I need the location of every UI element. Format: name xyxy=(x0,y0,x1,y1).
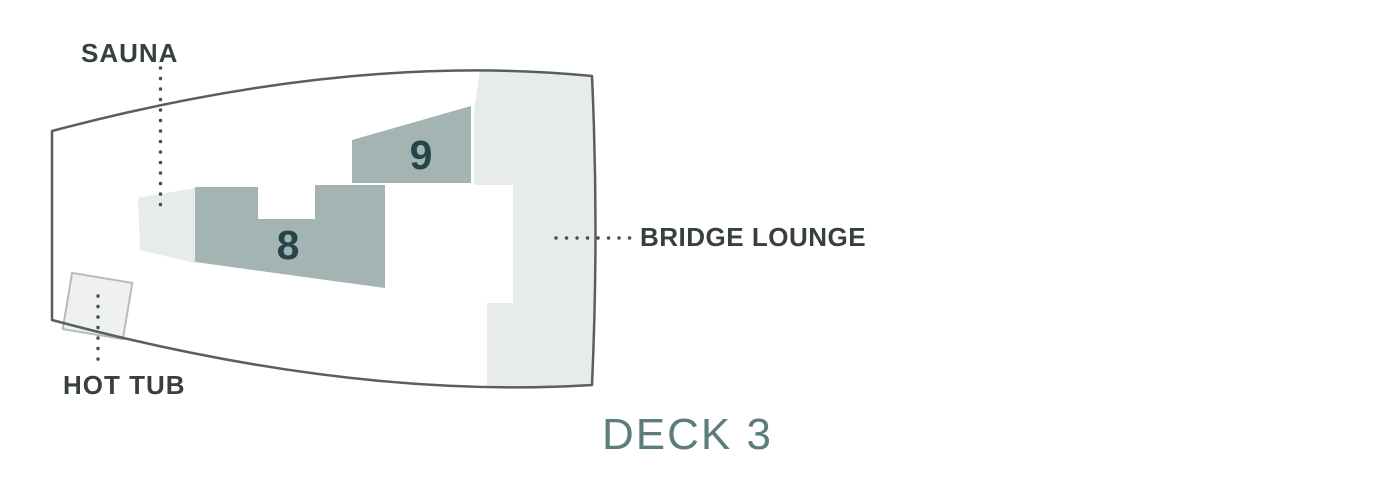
hot-tub-label: HOT TUB xyxy=(63,372,186,398)
sauna-label: SAUNA xyxy=(81,40,178,66)
area-8-number: 8 xyxy=(268,225,308,266)
deck-plan: SAUNA HOT TUB BRIDGE LOUNGE 8 9 DECK 3 xyxy=(0,0,1400,492)
deck-title: DECK 3 xyxy=(602,413,773,457)
area-9-number: 9 xyxy=(401,135,441,176)
bridge-lounge-label: BRIDGE LOUNGE xyxy=(640,224,866,250)
